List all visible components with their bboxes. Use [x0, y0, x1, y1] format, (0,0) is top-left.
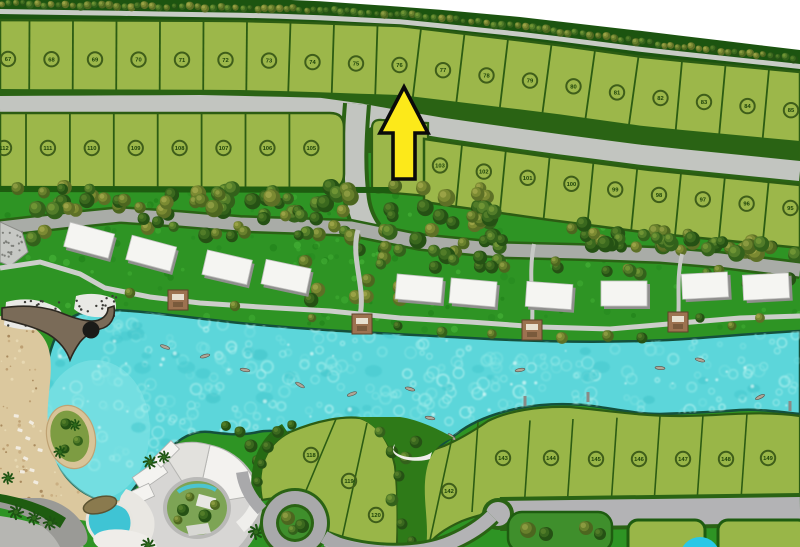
svg-text:144: 144	[546, 456, 556, 462]
svg-text:108: 108	[175, 146, 185, 152]
svg-text:76: 76	[396, 63, 403, 69]
svg-text:107: 107	[219, 146, 229, 152]
svg-text:111: 111	[43, 146, 53, 152]
svg-text:149: 149	[763, 456, 773, 462]
svg-text:109: 109	[131, 146, 141, 152]
svg-text:98: 98	[656, 193, 663, 199]
svg-text:102: 102	[479, 170, 489, 176]
svg-text:72: 72	[222, 58, 228, 64]
svg-text:82: 82	[657, 96, 663, 102]
svg-text:73: 73	[266, 59, 273, 65]
svg-text:67: 67	[5, 57, 11, 63]
svg-text:100: 100	[567, 182, 577, 188]
svg-text:147: 147	[678, 457, 688, 463]
svg-text:75: 75	[353, 62, 360, 68]
svg-text:99: 99	[612, 188, 619, 194]
svg-text:95: 95	[787, 206, 794, 212]
svg-text:70: 70	[135, 58, 141, 64]
svg-text:79: 79	[527, 79, 534, 85]
svg-text:118: 118	[306, 453, 316, 459]
svg-text:68: 68	[48, 57, 55, 63]
svg-text:110: 110	[87, 146, 96, 152]
svg-text:80: 80	[570, 84, 576, 90]
svg-text:81: 81	[614, 91, 621, 97]
svg-text:146: 146	[634, 457, 644, 463]
svg-text:85: 85	[788, 108, 795, 114]
svg-text:84: 84	[744, 104, 751, 110]
svg-text:74: 74	[309, 60, 316, 66]
svg-text:120: 120	[371, 513, 381, 519]
svg-text:97: 97	[700, 197, 706, 203]
svg-text:96: 96	[743, 202, 750, 208]
svg-text:143: 143	[498, 456, 508, 462]
svg-text:112: 112	[0, 146, 9, 152]
svg-text:145: 145	[591, 457, 601, 463]
svg-text:142: 142	[444, 489, 454, 495]
svg-text:106: 106	[263, 146, 273, 152]
svg-text:83: 83	[701, 100, 708, 106]
svg-text:105: 105	[306, 146, 316, 152]
svg-text:71: 71	[179, 58, 186, 64]
svg-text:148: 148	[721, 457, 731, 463]
svg-text:101: 101	[523, 176, 533, 182]
svg-text:119: 119	[344, 479, 354, 485]
svg-text:103: 103	[435, 164, 445, 170]
svg-text:69: 69	[92, 58, 99, 64]
svg-text:78: 78	[483, 74, 490, 80]
svg-text:77: 77	[440, 68, 446, 74]
